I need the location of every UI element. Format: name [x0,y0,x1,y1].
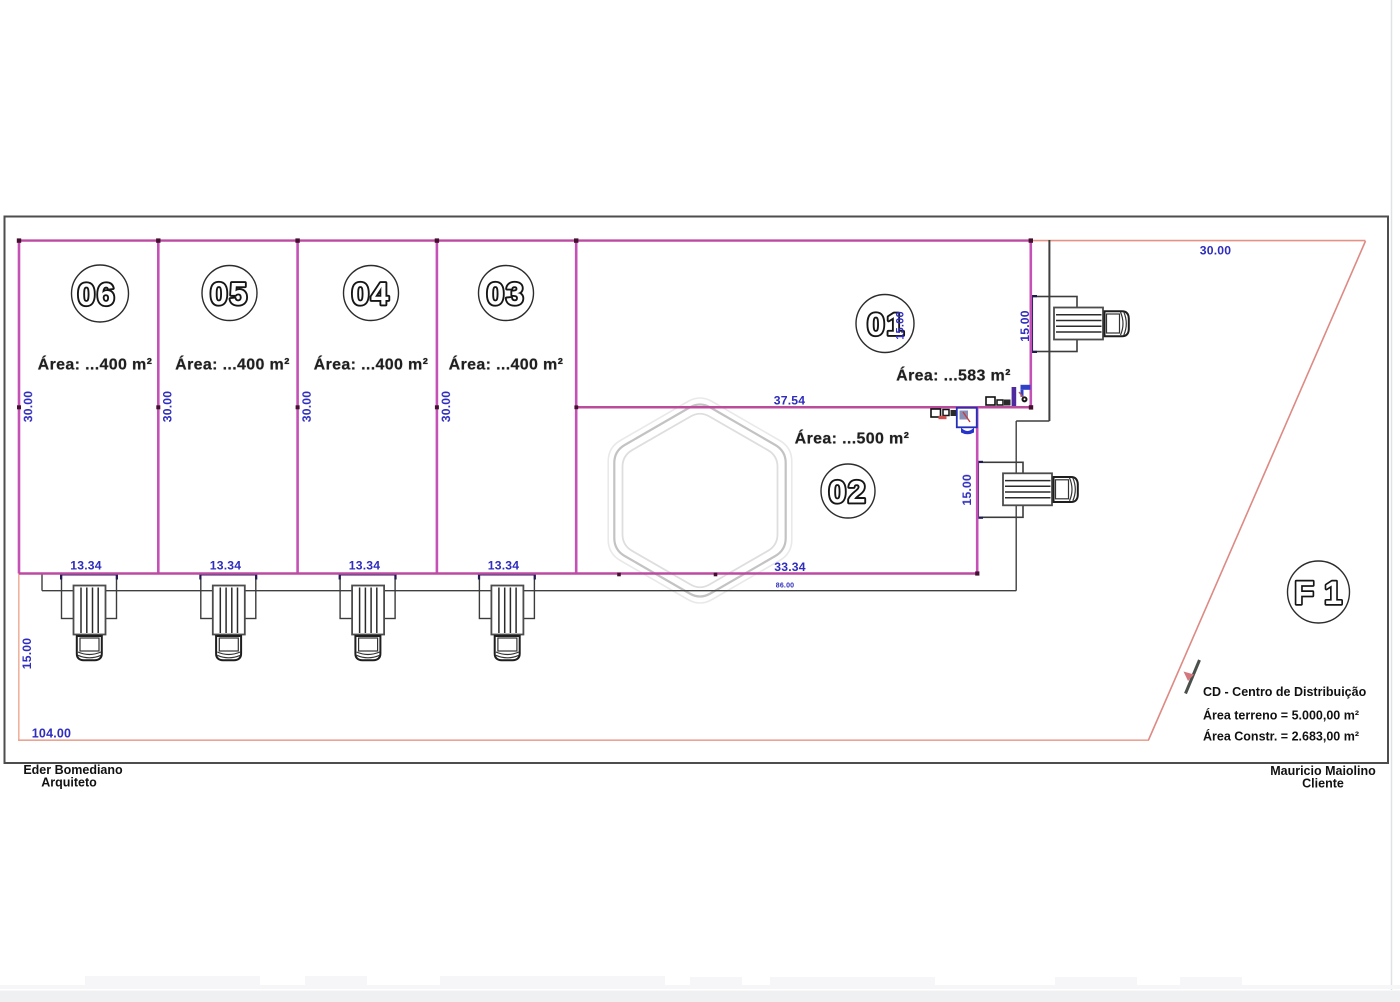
svg-text:Arquiteto: Arquiteto [41,776,97,790]
svg-text:15.00: 15.00 [895,311,907,340]
svg-text:03: 03 [487,276,526,312]
svg-text:05: 05 [210,276,249,312]
svg-text:Área: ...400 m²: Área: ...400 m² [38,355,153,374]
svg-text:13.34: 13.34 [70,559,102,573]
svg-text:F 1: F 1 [1294,575,1342,611]
svg-text:30.00: 30.00 [21,391,35,423]
svg-text:37.54: 37.54 [774,394,806,408]
svg-text:Área: ...400 m²: Área: ...400 m² [175,355,290,374]
svg-text:86.00: 86.00 [776,583,795,590]
svg-text:13.34: 13.34 [349,559,381,573]
svg-text:15.00: 15.00 [960,474,974,506]
svg-text:13.34: 13.34 [488,559,520,573]
svg-text:13.34: 13.34 [210,559,242,573]
svg-text:CD - Centro de Distribuição: CD - Centro de Distribuição [1203,685,1367,699]
svg-text:30.00: 30.00 [1200,244,1232,258]
svg-text:Área terreno = 5.000,00 m²: Área terreno = 5.000,00 m² [1203,708,1359,723]
svg-text:04: 04 [352,276,391,312]
svg-text:33.34: 33.34 [774,560,806,574]
svg-text:15.00: 15.00 [20,638,34,670]
svg-text:Área: ...500 m²: Área: ...500 m² [795,429,910,448]
svg-text:30.00: 30.00 [300,391,314,423]
svg-text:30.00: 30.00 [439,391,453,423]
svg-text:Área: ...400 m²: Área: ...400 m² [314,355,429,374]
svg-text:02: 02 [829,474,868,510]
svg-text:30.00: 30.00 [161,391,175,423]
svg-text:104.00: 104.00 [32,727,71,741]
svg-text:15.00: 15.00 [1018,310,1032,342]
svg-text:Área: ...583 m²: Área: ...583 m² [896,366,1011,385]
svg-text:Área: ...400 m²: Área: ...400 m² [449,355,564,374]
svg-text:Cliente: Cliente [1302,777,1344,791]
svg-text:Área Constr. = 2.683,00 m²: Área Constr. = 2.683,00 m² [1203,729,1359,744]
svg-text:06: 06 [78,276,117,312]
